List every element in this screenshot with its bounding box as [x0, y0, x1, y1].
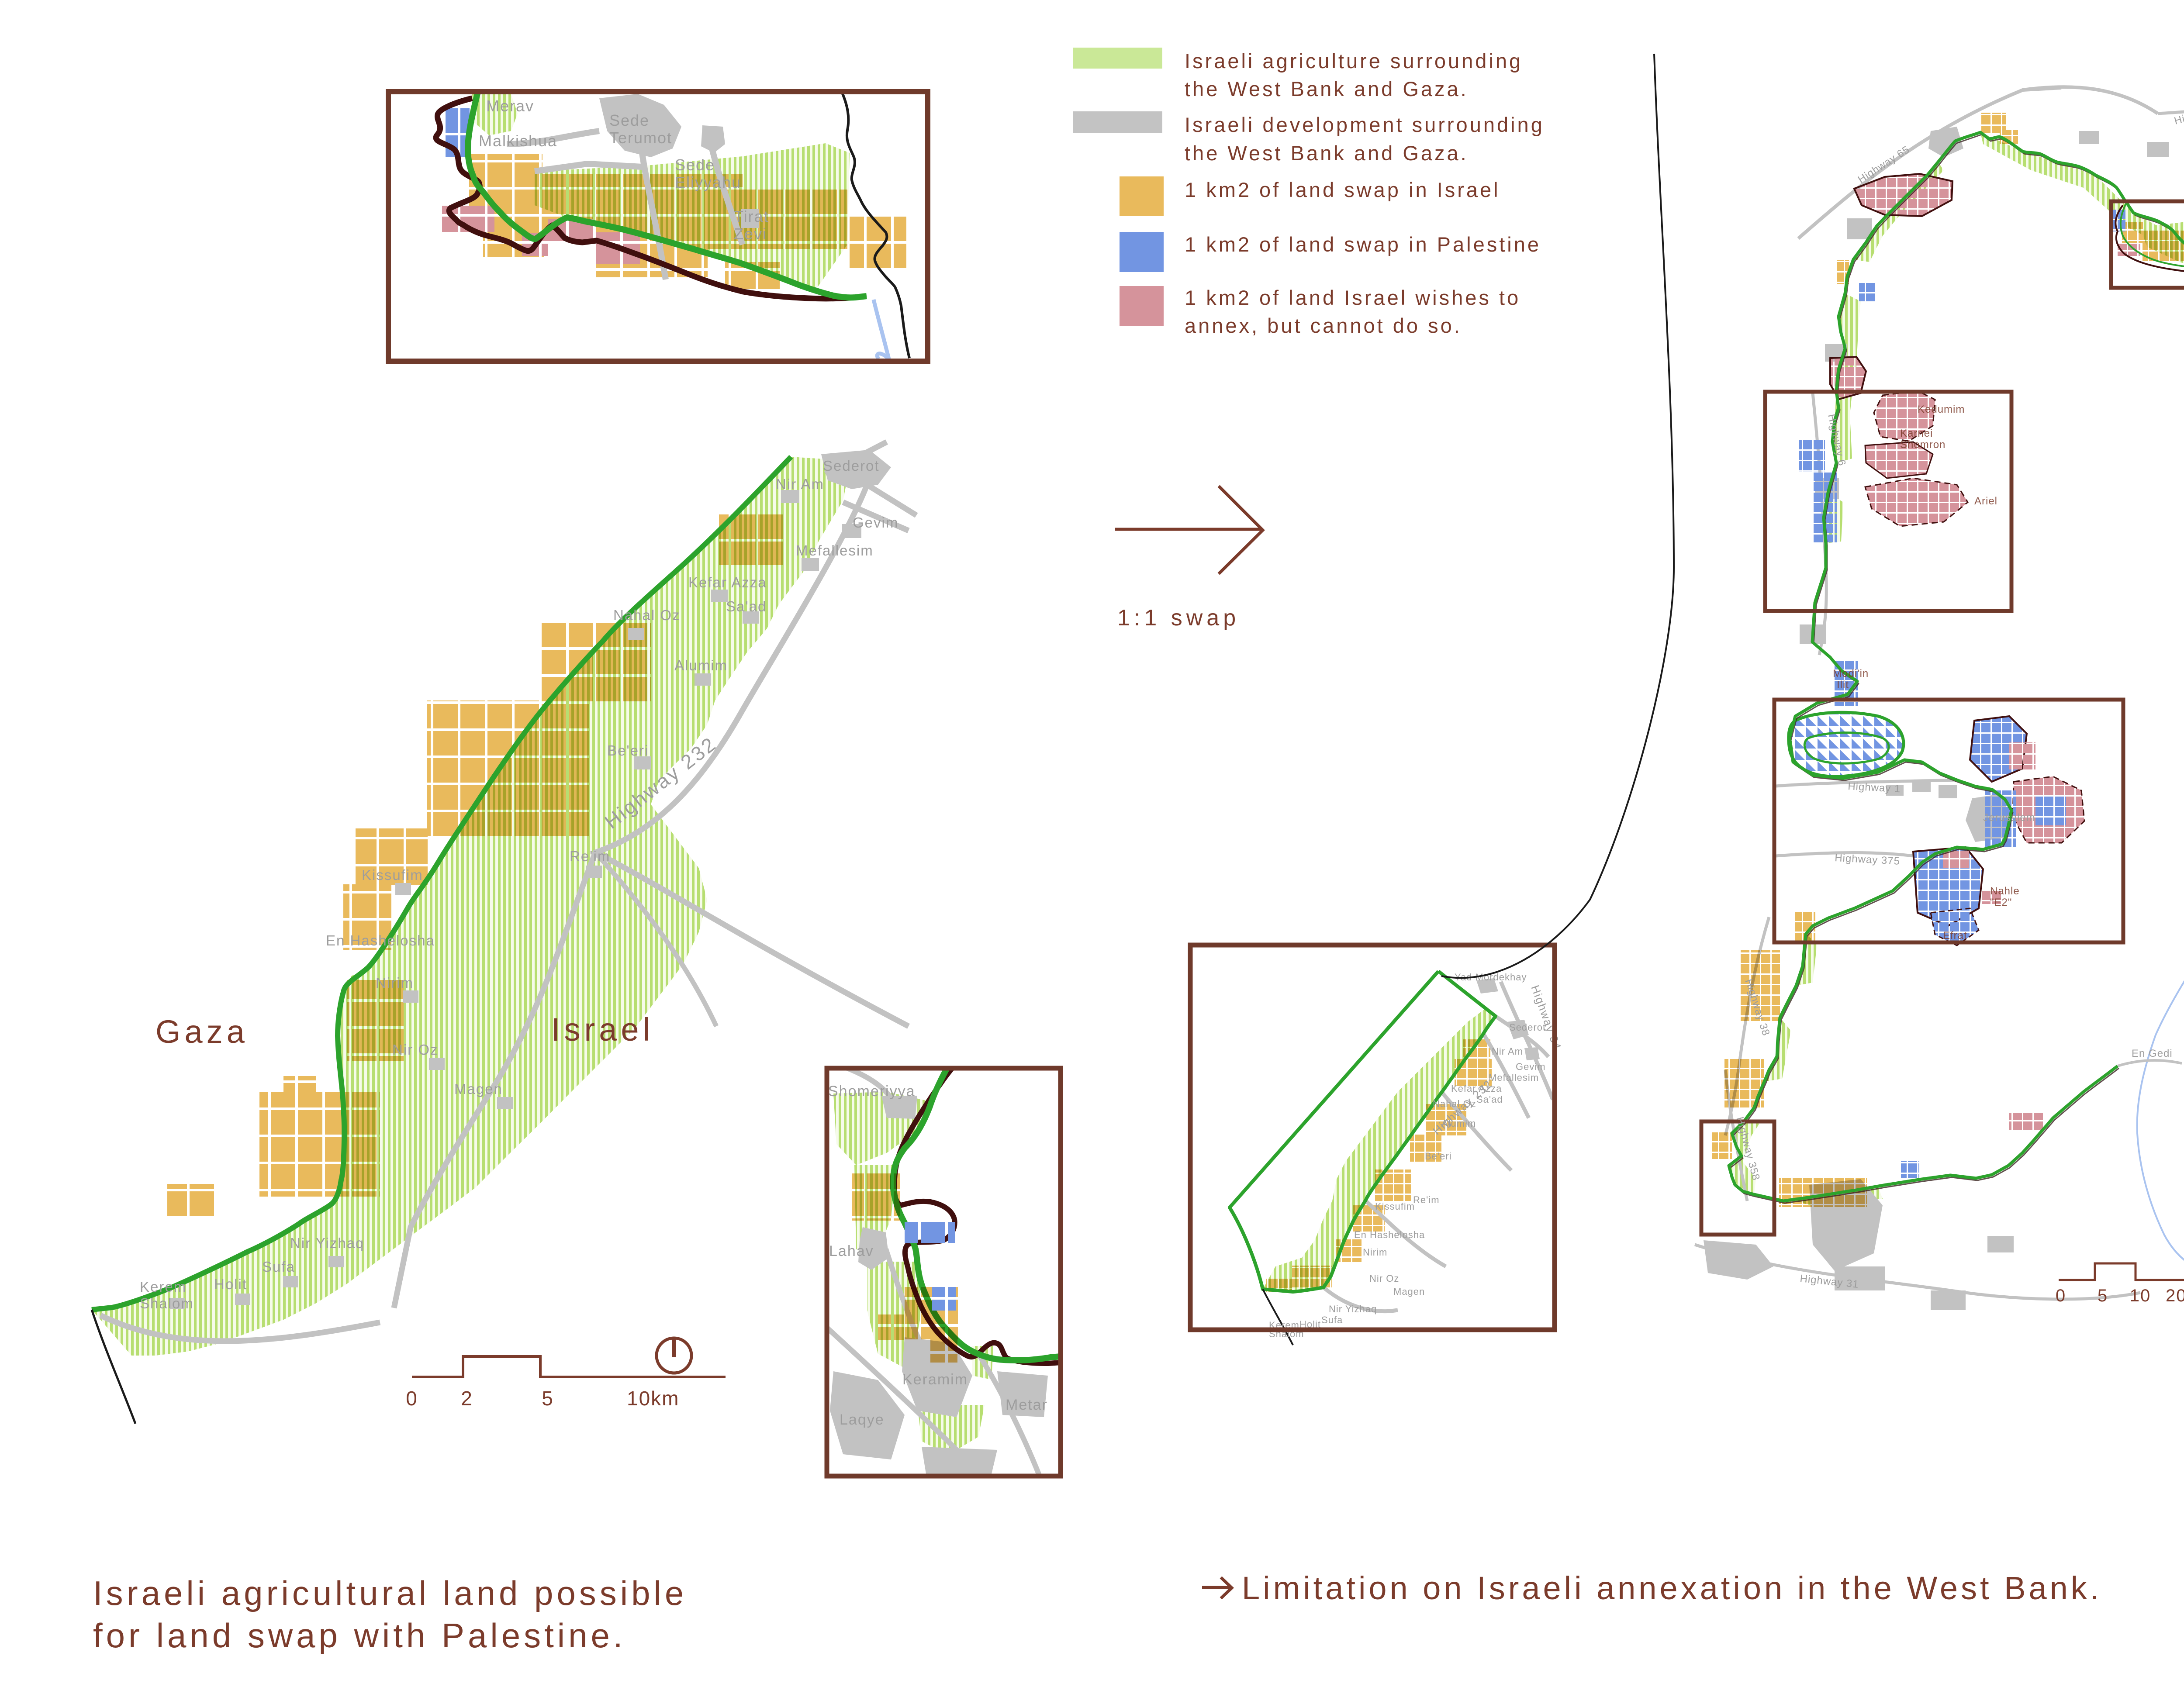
svg-text:Kedumim: Kedumim: [1918, 404, 1965, 415]
svg-text:Mefallesim: Mefallesim: [796, 542, 874, 559]
svg-text:Karnei: Karnei: [1900, 428, 1933, 439]
svg-text:Modi'in: Modi'in: [1833, 668, 1869, 680]
svg-text:1 km2 of land swap in Palestin: 1 km2 of land swap in Palestine: [1185, 233, 1541, 256]
svg-text:Israeli agricultural land poss: Israeli agricultural land possible: [93, 1574, 687, 1612]
svg-text:Shomeriyya: Shomeriyya: [828, 1083, 916, 1100]
svg-text:annex, but cannot do so.: annex, but cannot do so.: [1185, 314, 1462, 337]
svg-text:Sede: Sede: [675, 156, 715, 174]
svg-text:Nir Am: Nir Am: [776, 476, 824, 492]
svg-text:Israel: Israel: [551, 1011, 654, 1048]
svg-text:Ilit: Ilit: [1837, 679, 1849, 691]
svg-text:Sede: Sede: [609, 111, 650, 129]
svg-text:Magen: Magen: [454, 1081, 503, 1097]
svg-text:Alumim: Alumim: [674, 657, 728, 673]
svg-text:Eliyyahu: Eliyyahu: [675, 173, 741, 191]
svg-text:Zevi: Zevi: [734, 225, 767, 243]
svg-text:5: 5: [542, 1387, 554, 1410]
svg-text:Nir Oz: Nir Oz: [392, 1042, 439, 1058]
svg-text:Be'eri: Be'eri: [607, 742, 649, 759]
svg-text:the West Bank and Gaza.: the West Bank and Gaza.: [1185, 77, 1469, 100]
svg-text:Sufa: Sufa: [1321, 1314, 1343, 1325]
svg-text:Merav: Merav: [486, 97, 534, 115]
svg-text:1 km2 of land swap in Israel: 1 km2 of land swap in Israel: [1185, 178, 1500, 201]
svg-text:2: 2: [461, 1387, 473, 1410]
svg-text:Kerem: Kerem: [140, 1279, 187, 1295]
svg-text:0: 0: [2056, 1286, 2066, 1305]
svg-text:Highway 1: Highway 1: [1848, 780, 1901, 795]
svg-text:Mefallesim: Mefallesim: [1489, 1072, 1539, 1083]
svg-text:"E2": "E2": [1990, 897, 2012, 908]
svg-text:1 km2 of land Israel wishes to: 1 km2 of land Israel wishes to: [1185, 286, 1521, 309]
svg-text:Re'im: Re'im: [570, 848, 610, 864]
svg-text:Be'eri: Be'eri: [1425, 1151, 1452, 1162]
svg-text:10: 10: [2130, 1286, 2151, 1305]
svg-text:En Hashelosha: En Hashelosha: [1354, 1229, 1425, 1240]
svg-text:Limitation on Israeli annexati: Limitation on Israeli annexation in the …: [1242, 1570, 2102, 1606]
svg-text:Nir Oz: Nir Oz: [1369, 1273, 1399, 1284]
svg-text:Shalom: Shalom: [140, 1295, 194, 1311]
svg-text:for land swap with Palestine.: for land swap with Palestine.: [93, 1616, 626, 1655]
svg-text:Gevim: Gevim: [853, 514, 898, 531]
svg-text:Sufa: Sufa: [262, 1259, 295, 1275]
svg-text:Holit: Holit: [214, 1276, 247, 1292]
svg-text:Kissufim: Kissufim: [362, 867, 423, 883]
svg-text:Keramim: Keramim: [902, 1371, 968, 1388]
svg-text:Nir Yizhaq: Nir Yizhaq: [1329, 1304, 1377, 1314]
svg-text:Gevim: Gevim: [1516, 1061, 1546, 1072]
svg-text:Kissufim: Kissufim: [1375, 1201, 1415, 1212]
svg-text:Nahal Oz: Nahal Oz: [613, 607, 681, 623]
svg-text:10km: 10km: [627, 1387, 679, 1410]
svg-text:Metar: Metar: [1006, 1397, 1048, 1413]
svg-text:Efrat: Efrat: [1943, 930, 1967, 942]
svg-text:Magen: Magen: [1393, 1286, 1425, 1297]
svg-text:Ariel: Ariel: [1974, 495, 1997, 507]
svg-text:Kefar Azza: Kefar Azza: [688, 574, 767, 590]
svg-text:Israeli development surroundin: Israeli development surrounding: [1185, 113, 1545, 136]
svg-text:Sederot: Sederot: [1509, 1022, 1546, 1033]
svg-text:Jerusalem: Jerusalem: [1983, 812, 2035, 824]
svg-text:Shomron: Shomron: [1900, 439, 1946, 451]
svg-text:1:1 swap: 1:1 swap: [1117, 605, 1240, 631]
svg-text:Nir Am: Nir Am: [1492, 1046, 1523, 1057]
svg-text:En Gedi: En Gedi: [2132, 1048, 2173, 1059]
svg-text:5: 5: [2098, 1286, 2108, 1305]
svg-text:the West Bank and Gaza.: the West Bank and Gaza.: [1185, 141, 1469, 165]
svg-text:Tirat: Tirat: [734, 207, 769, 225]
svg-text:0: 0: [406, 1387, 418, 1410]
svg-text:Malkishua: Malkishua: [479, 132, 557, 150]
svg-text:Nir Yizhaq: Nir Yizhaq: [290, 1235, 364, 1251]
svg-text:En Hashelosha: En Hashelosha: [326, 932, 435, 949]
svg-text:Nirim: Nirim: [1363, 1247, 1387, 1258]
svg-text:Israeli agriculture surroundin: Israeli agriculture surrounding: [1185, 49, 1523, 72]
svg-text:Gaza: Gaza: [156, 1014, 249, 1050]
svg-text:Laqye: Laqye: [840, 1411, 885, 1428]
svg-text:Nahle: Nahle: [1990, 885, 2020, 897]
svg-text:Sederot: Sederot: [823, 458, 880, 474]
svg-text:20km: 20km: [2166, 1286, 2184, 1305]
svg-text:Re'im: Re'im: [1413, 1194, 1440, 1205]
svg-text:Nirim: Nirim: [376, 975, 414, 991]
svg-text:Sa'ad: Sa'ad: [726, 598, 767, 614]
svg-text:Terumot: Terumot: [609, 129, 672, 147]
svg-text:Lahav: Lahav: [829, 1243, 874, 1259]
